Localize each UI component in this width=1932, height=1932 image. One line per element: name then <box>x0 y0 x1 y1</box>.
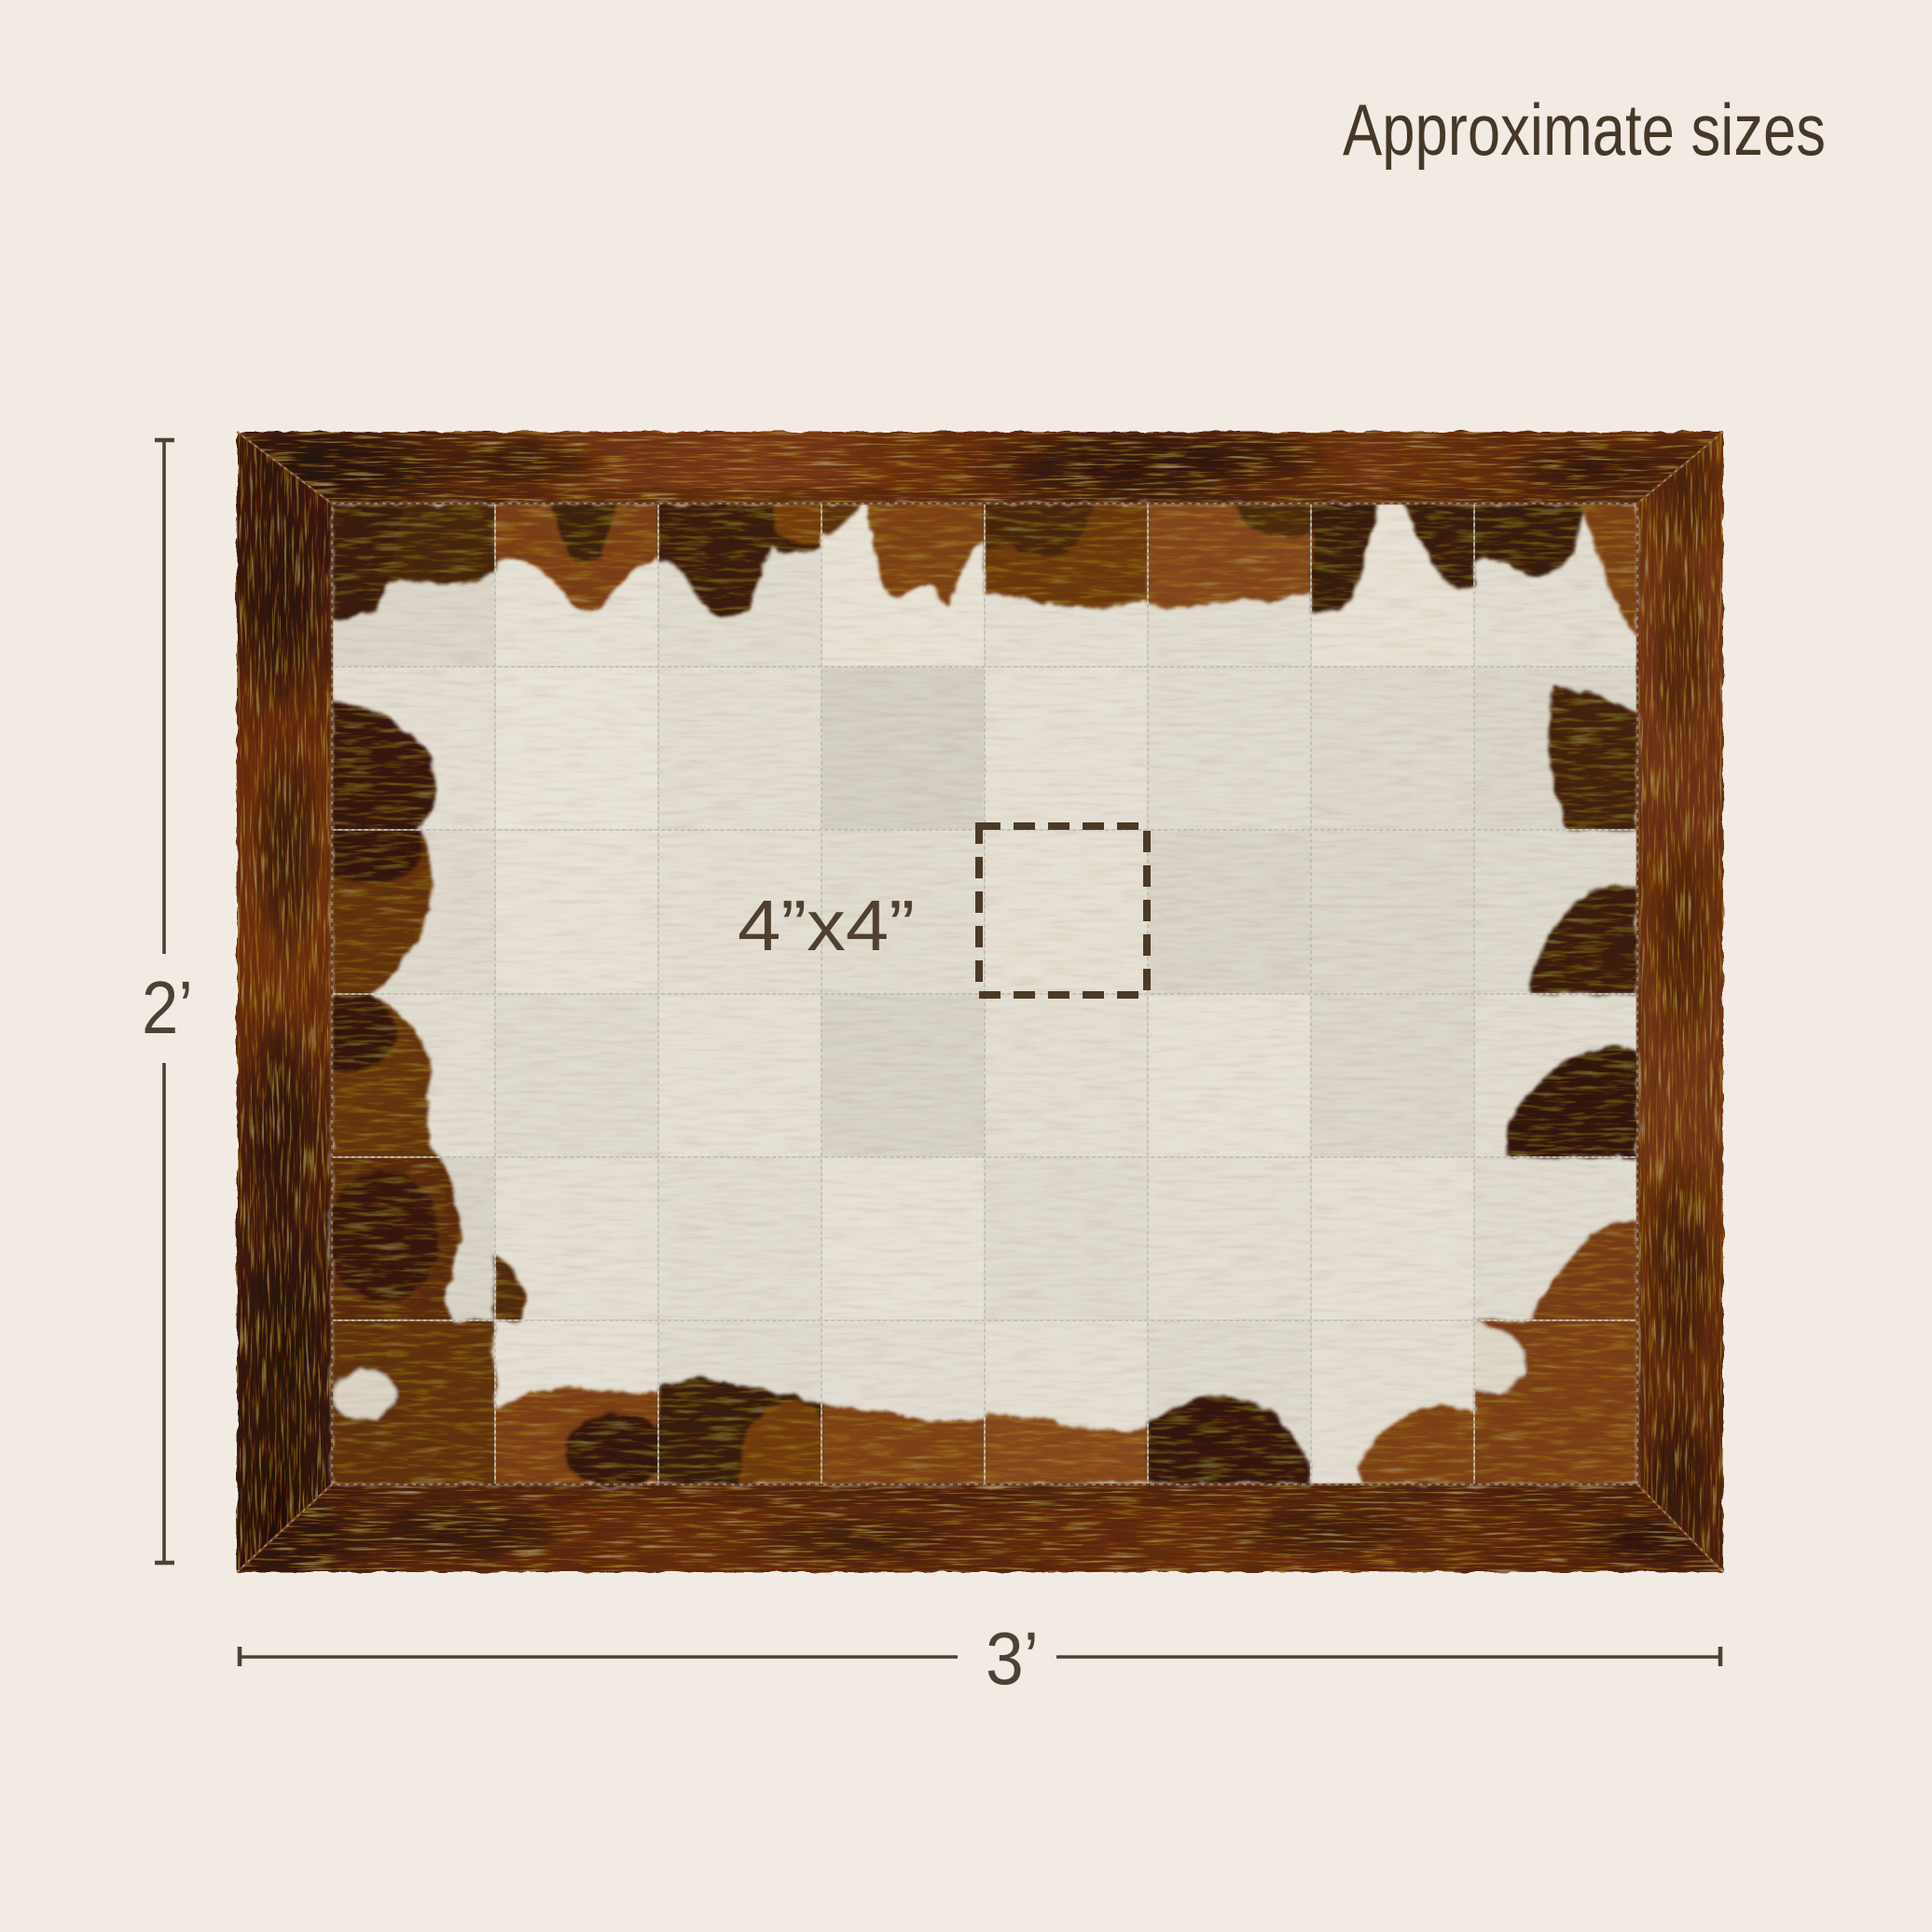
svg-text:4”x4”: 4”x4” <box>738 886 915 966</box>
svg-text:2’: 2’ <box>142 966 193 1049</box>
svg-text:3’: 3’ <box>986 1617 1039 1700</box>
svg-text:Approximate sizes: Approximate sizes <box>1343 89 1826 171</box>
